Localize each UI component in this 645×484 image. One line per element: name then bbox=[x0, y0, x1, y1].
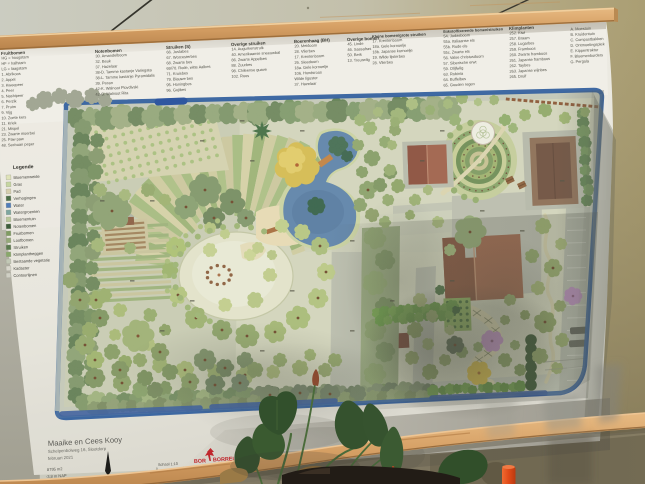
svg-text:Kadaster: Kadaster bbox=[13, 265, 30, 271]
svg-text:Verhogingen: Verhogingen bbox=[13, 195, 36, 201]
svg-text:13. Treurwilg: 13. Treurwilg bbox=[347, 57, 369, 63]
svg-text:Loofbomen: Loofbomen bbox=[13, 237, 33, 243]
svg-text:Legende: Legende bbox=[13, 164, 34, 171]
svg-text:G. Pergola: G. Pergola bbox=[570, 58, 590, 64]
svg-text:Struiken: Struiken bbox=[13, 244, 28, 250]
svg-text:Fruitbomen: Fruitbomen bbox=[13, 230, 33, 236]
svg-text:Pad: Pad bbox=[13, 189, 20, 194]
svg-text:Notenbomen: Notenbomen bbox=[13, 223, 36, 229]
svg-text:265. Druif: 265. Druif bbox=[509, 73, 527, 79]
svg-text:102. Roos: 102. Roos bbox=[231, 73, 249, 79]
svg-text:96. Gojibes: 96. Gojibes bbox=[166, 87, 186, 93]
svg-text:37. Hazelaar: 37. Hazelaar bbox=[294, 81, 317, 87]
svg-text:Gras: Gras bbox=[13, 182, 22, 187]
svg-text:BOR: BOR bbox=[194, 458, 206, 465]
svg-text:28. Vlierbes: 28. Vlierbes bbox=[372, 59, 393, 65]
svg-text:8795 m2: 8795 m2 bbox=[47, 466, 64, 472]
svg-text:Contourlijnen: Contourlijnen bbox=[13, 272, 37, 278]
svg-text:Water: Water bbox=[13, 202, 24, 208]
svg-text:Bloementuin: Bloementuin bbox=[13, 216, 35, 222]
